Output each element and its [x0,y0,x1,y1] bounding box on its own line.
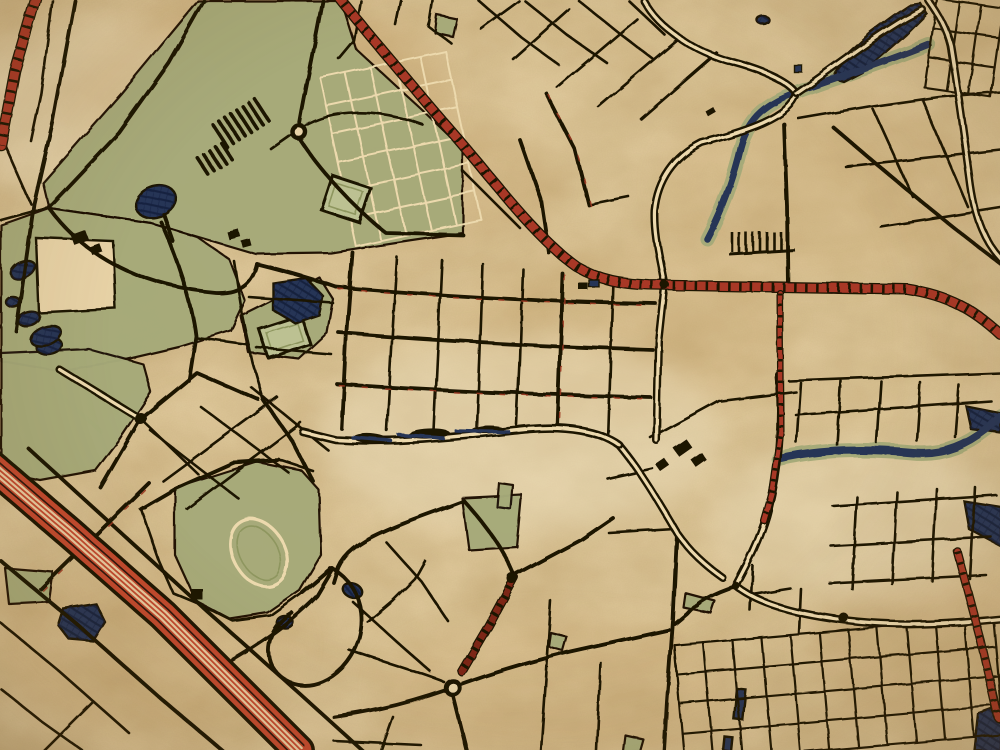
building-block [578,282,587,289]
green-small-2 [548,632,566,650]
map-sign-marker [588,279,598,286]
green-small-3 [622,734,642,750]
canal-water [455,430,508,431]
roundabout [445,680,459,694]
junction-blob [731,581,739,589]
green-small-1 [496,482,512,508]
canal-dash-se-2 [723,736,732,750]
junction-blob [838,612,848,622]
building-block [190,588,202,599]
pond-top-small-hatch [756,15,768,23]
map-artwork-viewport [0,0,1000,750]
roundabout [292,125,305,138]
stain [660,90,980,280]
junction-blob [507,573,518,584]
green-mid-south [461,494,521,549]
map-sign-marker [793,64,801,71]
park-clearing [35,237,115,312]
junction-blob [660,280,669,289]
junction-blob [134,412,146,424]
map-canvas [0,0,1000,750]
